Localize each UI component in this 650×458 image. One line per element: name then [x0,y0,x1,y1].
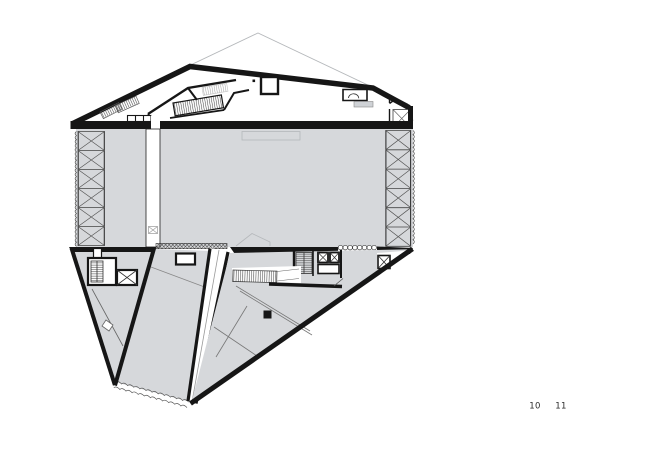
attic-room-box [261,77,278,94]
corridor-stair [233,270,277,283]
corridor-slot [151,116,160,131]
attic-wc-room [343,90,367,101]
page-numbers: 10 11 [529,402,566,412]
floor-plan-drawing: 10 11 [0,0,650,458]
plan-page: 10 11 [0,0,650,458]
right-truss-scalloped-edge [413,131,414,244]
wall-notch [94,249,102,258]
column [264,311,272,319]
hall-floor [76,129,413,247]
elevator [117,270,137,285]
wall-cell-row [128,116,152,122]
attic-level [72,66,411,129]
stair-room [88,258,116,285]
service-rooms [294,250,341,278]
ramp-top-box [176,254,195,265]
attic-hatch-strip [354,102,373,108]
attic-column [253,80,256,83]
hatched-opening [156,243,227,248]
main-hall [75,129,414,247]
hall-wall-strip [146,129,160,247]
page-number-left: 10 [529,402,540,412]
page-number-right: 11 [555,402,566,412]
